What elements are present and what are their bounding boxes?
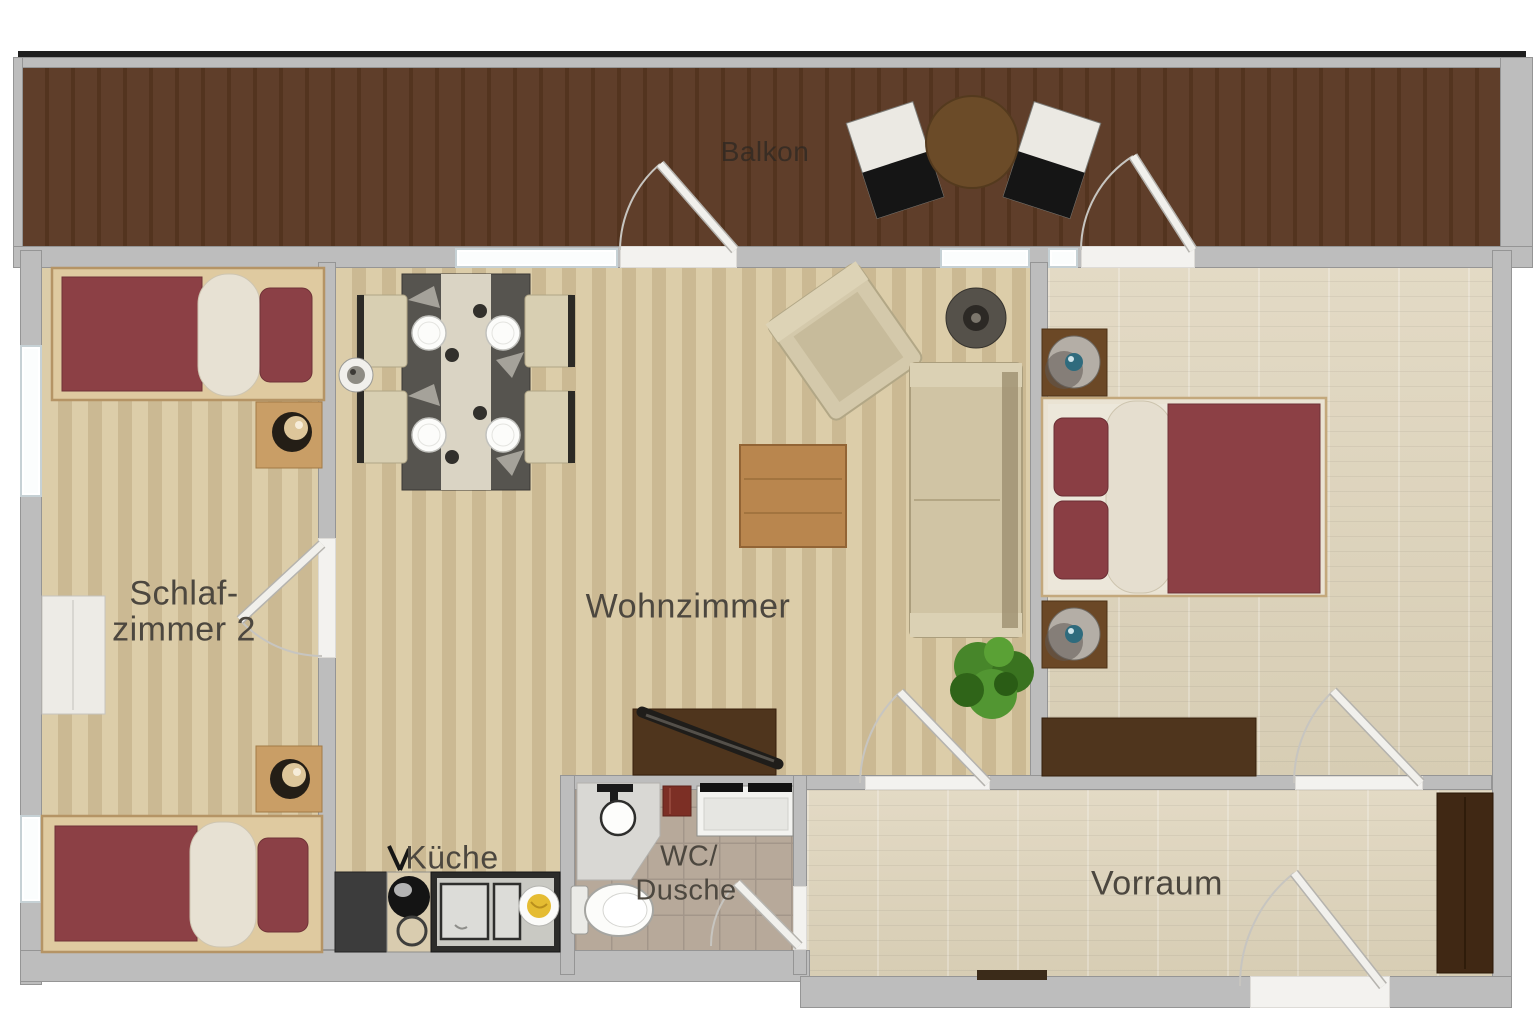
hall-label: Vorraum	[1091, 865, 1223, 904]
balcony-label: Balkon	[721, 136, 810, 168]
dining-chair-top-right	[525, 295, 575, 367]
dresser-bedroom2	[42, 596, 105, 714]
door-balcony-living	[620, 164, 735, 250]
double-bed	[1042, 398, 1326, 596]
floor-vase	[339, 358, 373, 392]
coffee-table	[740, 445, 846, 547]
wardrobe-hall	[1437, 793, 1493, 973]
doormat	[977, 970, 1047, 980]
living-room-label: Wohnzimmer	[586, 588, 791, 627]
balcony-table	[926, 96, 1018, 188]
bathroom-label-line2: Dusche	[635, 875, 736, 908]
armchair	[766, 261, 925, 422]
towel	[663, 786, 691, 816]
single-bed-bottom	[42, 816, 322, 952]
kitchen-label: Küche	[405, 840, 498, 877]
nightstand-bedroom2-bottom	[256, 746, 322, 812]
tv-sideboard	[633, 709, 778, 775]
cooking-pot-icon	[388, 876, 430, 918]
floor-lamp	[946, 288, 1006, 348]
dining-chair-bottom-left	[357, 391, 407, 463]
balcony-chair-right	[1003, 102, 1100, 219]
dining-chair-bottom-right	[525, 391, 575, 463]
bedroom2-label-line2: zimmer 2	[112, 611, 256, 650]
bedroom2-label-line1: Schlaf-	[129, 575, 238, 614]
dining-chair-top-left	[357, 295, 407, 367]
nightstand-bedroom1-top	[1042, 329, 1107, 396]
single-bed-top	[52, 268, 324, 400]
washbasin-counter	[577, 783, 660, 880]
door-bedroom1-hall	[1294, 691, 1421, 783]
washbasin-icon	[601, 801, 635, 835]
bathroom-label-line1: WC/	[660, 841, 718, 874]
door-balcony-bedroom	[1081, 156, 1193, 250]
door-entrance	[1240, 873, 1383, 986]
floor-plan: Balkon Schlaf- zimmer 2 Wohnzimmer Küche…	[0, 0, 1536, 1027]
nightstand-bedroom1-bottom	[1042, 601, 1107, 668]
shower	[697, 783, 793, 836]
dresser-bedroom1	[1042, 718, 1256, 776]
sofa	[910, 363, 1022, 637]
sink-basin-icon	[441, 884, 488, 939]
sink-drainer-icon	[494, 884, 520, 939]
nightstand-bedroom2-top	[256, 402, 322, 468]
potted-plant	[950, 637, 1034, 719]
